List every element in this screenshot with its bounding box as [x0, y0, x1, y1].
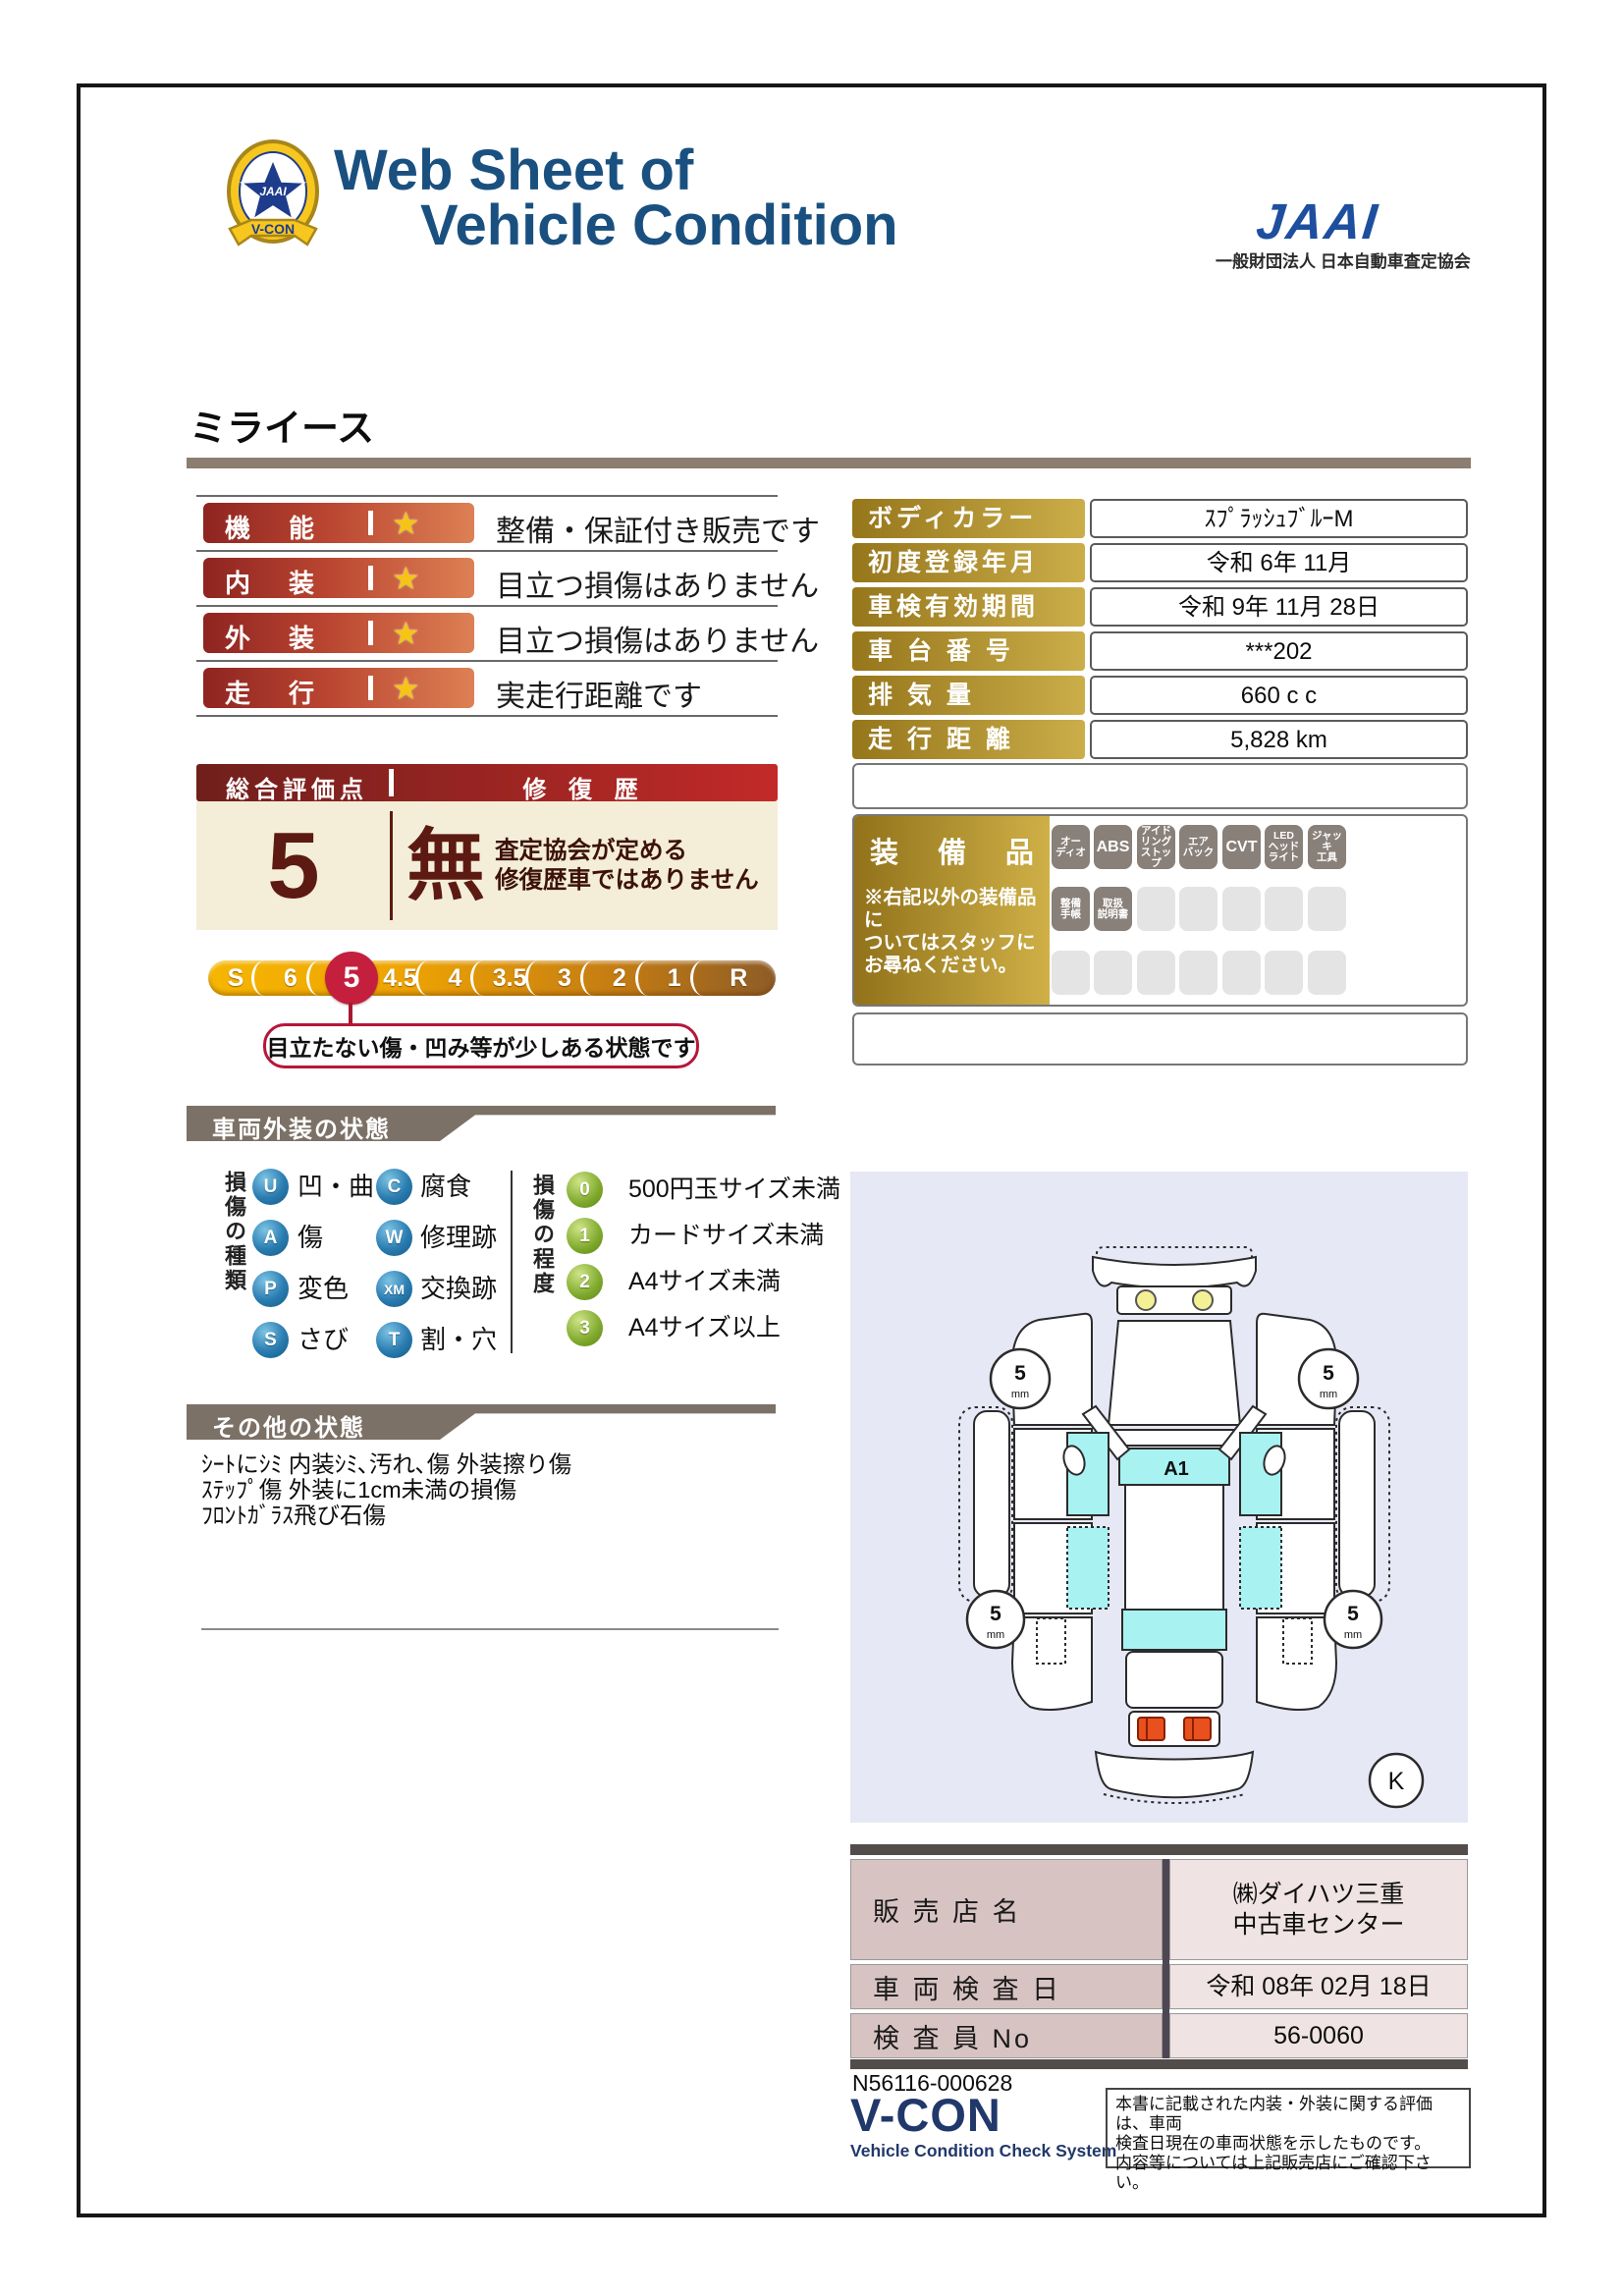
- damage-type-code: T: [376, 1322, 412, 1358]
- tire-depth-unit: mm: [1344, 1629, 1362, 1641]
- damage-degree-label: A4サイズ未満: [628, 1264, 781, 1300]
- star-icon: ★: [392, 670, 420, 707]
- spec-label-mileage: 走 行 距 離: [852, 720, 1085, 759]
- damage-degree-code: 1: [567, 1218, 603, 1254]
- equipment-gold-panel: 装 備 品 ※右記以外の装備品に ついてはスタッフに お尋ねください。: [854, 816, 1050, 1005]
- spec-label-displacement: 排 気 量: [852, 676, 1085, 715]
- damage-type-code: U: [252, 1169, 289, 1205]
- equipment-slot-empty: [1179, 887, 1217, 931]
- rule: [201, 1628, 779, 1630]
- equipment-badge-service-book: 整備 手帳: [1052, 887, 1090, 931]
- tire-depth-value: 5: [1323, 1362, 1334, 1385]
- damage-type-title: 損傷の種類: [218, 1171, 249, 1293]
- rating-comment: 目立つ損傷はありません: [496, 617, 819, 660]
- vcon-emblem-icon: JAAI V-CON: [216, 138, 330, 264]
- equipment-badge-abs: ABS: [1094, 825, 1132, 869]
- equipment-slot-empty: [1222, 887, 1261, 931]
- vehicle-condition-sheet: JAAI V-CON Web Sheet of Vehicle Conditio…: [0, 0, 1623, 2296]
- tire-depth-value: 5: [1347, 1603, 1359, 1625]
- rating-comment: 整備・保証付き販売です: [496, 507, 820, 550]
- spec-empty-box: [852, 763, 1468, 809]
- emblem-center-label: JAAI: [259, 185, 287, 198]
- tire-depth-unit: mm: [1011, 1389, 1029, 1400]
- rule: [196, 660, 778, 662]
- divider: [368, 676, 373, 700]
- repair-status: 無: [406, 819, 485, 912]
- tire-depth-unit: mm: [1320, 1389, 1337, 1400]
- equipment-badge-idling-stop: アイド リング ストップ: [1137, 825, 1175, 869]
- emblem-ribbon-label: V-CON: [251, 221, 295, 237]
- tire-depth-value: 5: [1014, 1362, 1026, 1385]
- exterior-section-title: 車両外装の状態: [212, 1110, 391, 1144]
- rating-label: 走 行: [225, 674, 321, 710]
- legend-divider: [511, 1171, 513, 1353]
- spec-label-chassis-number: 車 台 番 号: [852, 631, 1085, 671]
- jaai-subtitle: 一般財団法人 日本自動車査定協会: [1216, 247, 1471, 272]
- dealer-table-bottom-bar: [850, 2059, 1468, 2069]
- damage-type-label: 傷: [298, 1220, 323, 1256]
- equipment-title: 装 備 品: [870, 830, 1050, 871]
- spec-label-first-registration: 初度登録年月: [852, 543, 1085, 582]
- repair-note: 査定協会が定める 修復歴車ではありません: [495, 837, 759, 896]
- disclaimer-box: 本書に記載された内装・外装に関する評価は、車両 検査日現在の車両状態を示したもの…: [1106, 2088, 1471, 2168]
- vehicle-diagram: 5 mm 5 mm 5 mm 5 mm A1 K: [850, 1172, 1468, 1823]
- equipment-slot-empty: [1308, 887, 1346, 931]
- tooltip-connector: [349, 1003, 352, 1025]
- spec-value-inspection-period: 令和 9年 11月 28日: [1090, 587, 1468, 627]
- equipment-slot-empty: [1179, 951, 1217, 995]
- scale-segment: R: [702, 960, 776, 996]
- divider: [368, 621, 373, 645]
- damage-type-label: 交換跡: [420, 1271, 497, 1307]
- rating-row-interior: 内 装 ★: [203, 558, 474, 598]
- equipment-panel: 装 備 品 ※右記以外の装備品に ついてはスタッフに お尋ねください。 オー デ…: [852, 814, 1468, 1007]
- spec-value-bodycolor: ｽﾌﾟﾗｯｼｭﾌﾞﾙｰM: [1090, 499, 1468, 538]
- dealer-name-value: ㈱ダイハツ三重 中古車センター: [1169, 1859, 1468, 1960]
- star-icon: ★: [392, 505, 420, 542]
- damage-degree-code: 2: [567, 1264, 603, 1300]
- equipment-slot-empty: [1137, 951, 1175, 995]
- rating-row-mileage: 走 行 ★: [203, 668, 474, 708]
- rating-row-function: 機 能 ★: [203, 503, 474, 543]
- other-condition-text: ｼｰﾄにｼﾐ 内装ｼﾐ､汚れ､傷 外装擦り傷 ｽﾃｯﾌﾟ傷 外装に1cm未満の損…: [201, 1451, 571, 1528]
- page-title-line2: Vehicle Condition: [420, 192, 898, 258]
- star-icon: ★: [392, 560, 420, 597]
- rule: [196, 715, 778, 717]
- overall-score-value: 5: [196, 801, 391, 930]
- vcon-logo-subtitle: Vehicle Condition Check System: [850, 2141, 1116, 2161]
- overall-body: 5 無 査定協会が定める 修復歴車ではありません: [196, 801, 778, 930]
- equipment-badge-jack-tools: ジャッキ 工具: [1308, 825, 1346, 869]
- selected-grade-marker: 5: [325, 952, 378, 1005]
- damage-type-code: A: [252, 1220, 289, 1256]
- grade-tooltip: 目立たない傷・凹み等が少しある状態です: [263, 1023, 699, 1068]
- damage-type-label: 修理跡: [420, 1220, 497, 1256]
- damage-degree-code: 3: [567, 1310, 603, 1346]
- equipment-badge-audio: オー ディオ: [1052, 825, 1090, 869]
- inspection-date-value: 令和 08年 02月 18日: [1169, 1964, 1468, 2009]
- equipment-slot-empty: [1308, 951, 1346, 995]
- rule: [196, 605, 778, 607]
- equipment-badge-manual: 取扱 説明書: [1094, 887, 1132, 931]
- damage-type-label: 凹・曲: [298, 1169, 374, 1205]
- damage-type-code: XM: [376, 1271, 412, 1307]
- damage-degree-label: 500円玉サイズ未満: [628, 1172, 840, 1208]
- spec-label-inspection-period: 車検有効期間: [852, 587, 1085, 627]
- overall-score-title: 総合評価点: [226, 770, 368, 804]
- car-center-panels: [1093, 1247, 1256, 1803]
- dealer-name-label: 販 売 店 名: [850, 1859, 1163, 1960]
- other-section-title: その他の状態: [212, 1408, 365, 1443]
- windshield-damage-mark: A1: [1163, 1458, 1189, 1480]
- damage-type-code: W: [376, 1220, 412, 1256]
- equipment-empty-box: [852, 1012, 1468, 1066]
- spec-value-first-registration: 令和 6年 11月: [1090, 543, 1468, 582]
- rating-label: 外 装: [225, 619, 321, 655]
- damage-degree-title: 損傷の程度: [526, 1174, 558, 1296]
- equipment-badge-airbag: エア バック: [1179, 825, 1217, 869]
- equipment-slot-empty: [1265, 951, 1303, 995]
- rule: [196, 550, 778, 552]
- spec-value-chassis-number: ***202: [1090, 631, 1468, 671]
- rating-label: 内 装: [225, 564, 321, 600]
- equipment-badge-cvt: CVT: [1222, 825, 1261, 869]
- damage-degree-label: A4サイズ以上: [628, 1310, 781, 1346]
- vehicle-diagram-panel: 5 mm 5 mm 5 mm 5 mm A1 K: [850, 1172, 1468, 1823]
- damage-degree-code: 0: [567, 1172, 603, 1208]
- damage-type-code: P: [252, 1271, 289, 1307]
- star-icon: ★: [392, 615, 420, 652]
- equipment-slot-empty: [1265, 887, 1303, 931]
- jaai-logo: JAAI: [1254, 192, 1381, 250]
- inspector-no-value: 56-0060: [1169, 2013, 1468, 2058]
- damage-degree-label: カードサイズ未満: [628, 1218, 824, 1254]
- spec-value-mileage: 5,828 km: [1090, 720, 1468, 759]
- divider: [368, 566, 373, 590]
- equipment-slot-empty: [1052, 951, 1090, 995]
- damage-type-label: 腐食: [420, 1169, 471, 1205]
- equipment-badge-led-headlight: LED ヘッド ライト: [1265, 825, 1303, 869]
- corner-mark-label: K: [1388, 1768, 1405, 1795]
- tire-depth-value: 5: [990, 1603, 1001, 1625]
- spec-value-displacement: 660 c c: [1090, 676, 1468, 715]
- overall-header: 総合評価点 修 復 歴: [196, 764, 778, 801]
- grade-scale: S 6 5 4.5 4 3.5 3 2 1 R: [208, 960, 776, 996]
- divider-bar: [187, 458, 1471, 468]
- rating-comment: 目立つ損傷はありません: [496, 562, 819, 605]
- damage-type-code: S: [252, 1322, 289, 1358]
- dealer-table-divider: [1163, 1859, 1169, 2058]
- inspection-date-label: 車 両 検 査 日: [850, 1964, 1163, 2009]
- tire-depth-unit: mm: [987, 1629, 1004, 1641]
- damage-type-label: さび: [298, 1322, 349, 1358]
- repair-history-title: 修 復 歴: [391, 770, 778, 804]
- damage-type-code: C: [376, 1169, 412, 1205]
- dealer-table-top-bar: [850, 1844, 1468, 1855]
- vcon-logo: V-CON: [850, 2088, 1001, 2142]
- equipment-note: ※右記以外の装備品に ついてはスタッフに お尋ねください。: [864, 887, 1050, 977]
- divider: [390, 811, 393, 920]
- equipment-slot-empty: [1094, 951, 1132, 995]
- rating-row-exterior: 外 装 ★: [203, 613, 474, 653]
- rule: [196, 495, 778, 497]
- divider: [368, 511, 373, 535]
- damage-type-label: 変色: [298, 1271, 349, 1307]
- spec-label-bodycolor: ボディカラー: [852, 499, 1085, 538]
- equipment-slot-empty: [1137, 887, 1175, 931]
- rating-comment: 実走行距離です: [496, 672, 702, 715]
- vehicle-name: ミライース: [189, 398, 374, 452]
- rating-label: 機 能: [225, 509, 321, 545]
- damage-type-label: 割・穴: [420, 1322, 497, 1358]
- inspector-no-label: 検 査 員 No: [850, 2013, 1163, 2058]
- equipment-slot-empty: [1222, 951, 1261, 995]
